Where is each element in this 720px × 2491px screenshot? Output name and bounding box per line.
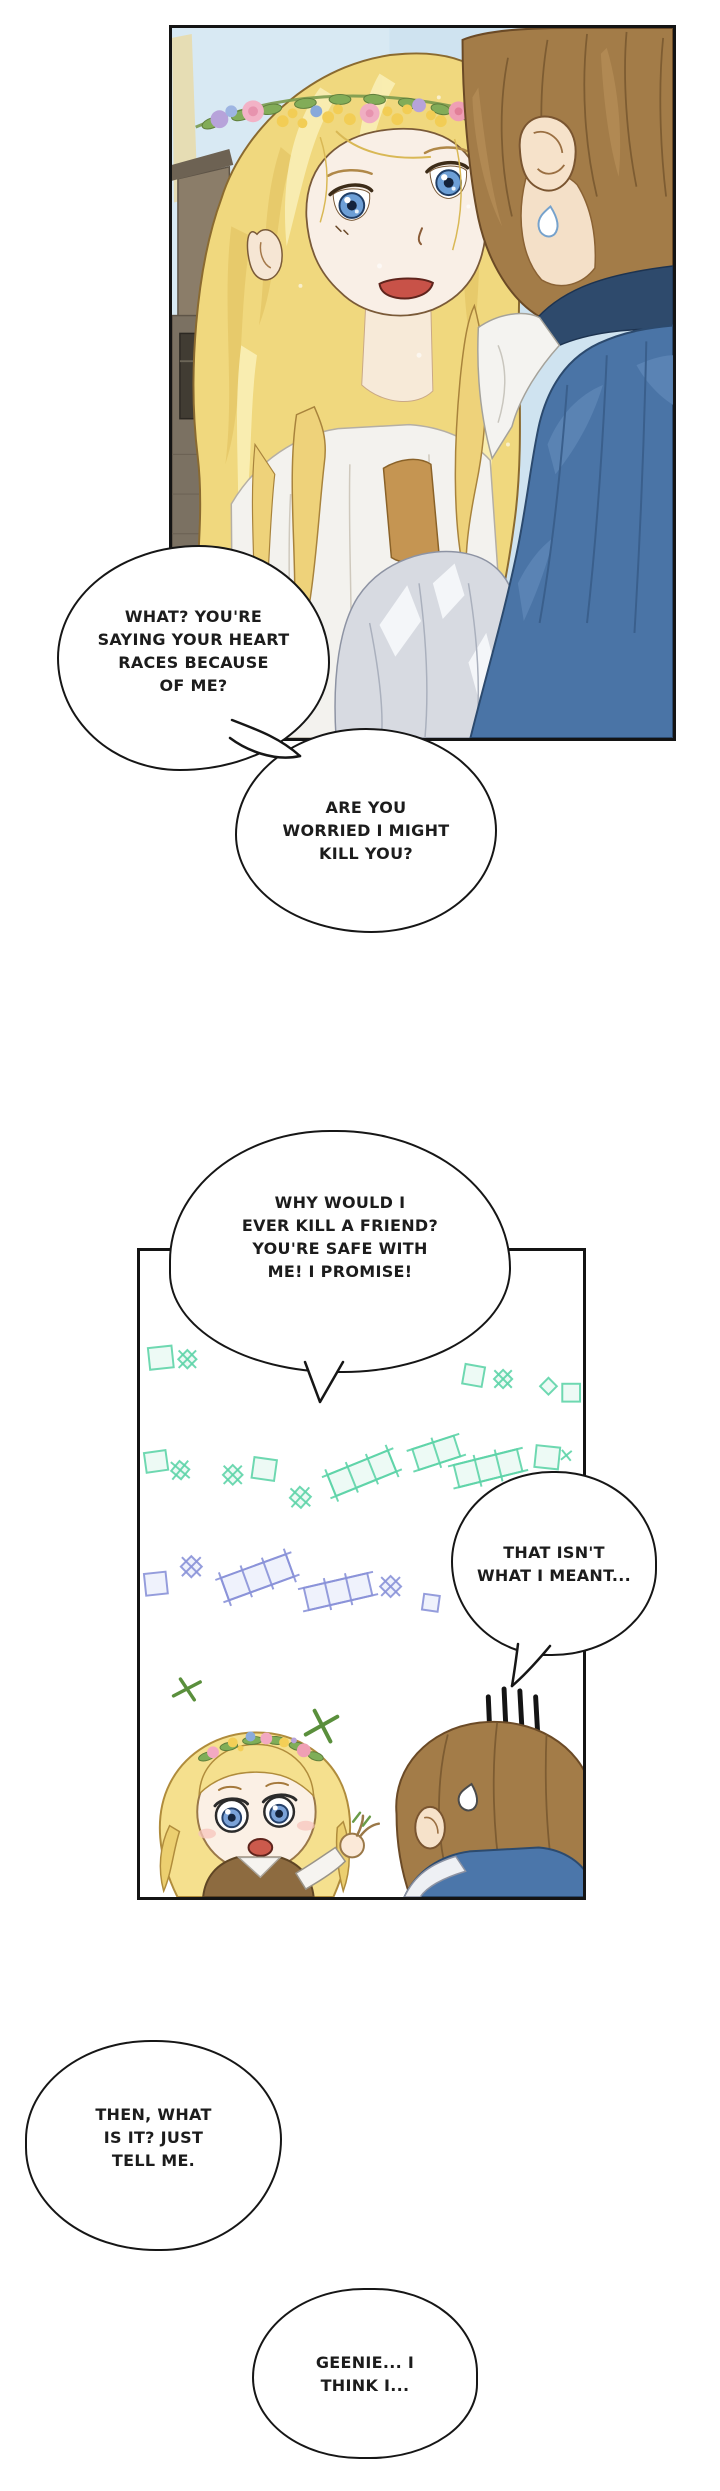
bubble-line: KILL YOU? [319,842,413,865]
bubble-line: OF ME? [159,674,227,697]
man-ear [520,116,576,190]
bubble-line: ME! I PROMISE! [268,1260,413,1283]
chibi-boy-ear [415,1807,445,1849]
speech-bubble-5: THEN, WHAT IS IT? JUST TELL ME. [25,2040,282,2251]
speech-bubble-4: THAT ISN'T WHAT I MEANT... [451,1471,657,1656]
bubble-line: YOU'RE SAFE WITH [252,1237,427,1260]
webtoon-page: WHAT? YOU'RE SAYING YOUR HEART RACES BEC… [0,0,720,2491]
bubble-line: EVER KILL A FRIEND? [242,1214,438,1237]
woman-neck [362,306,433,402]
bubble-line: IS IT? JUST [104,2126,203,2149]
bubble-line: WORRIED I MIGHT [283,819,450,842]
chibi-boy [396,1722,583,1897]
speech-bubble-3: WHY WOULD I EVER KILL A FRIEND? YOU'RE S… [169,1130,511,1373]
bubble-line: RACES BECAUSE [118,651,269,674]
vest-strap [383,459,438,562]
bubble-line: WHY WOULD I [275,1191,406,1214]
speech-bubble-6: GEENIE... I THINK I... [252,2288,478,2459]
bubble-3-tail [303,1360,347,1406]
bubble-line: TELL ME. [112,2149,195,2172]
bubble-line: WHAT? YOU'RE [125,605,262,628]
bubble-line: ARE YOU [326,796,407,819]
bubble-line: THINK I... [321,2374,410,2397]
bubble-4-tail [510,1642,556,1688]
bubble-1-tail [228,714,306,772]
bubble-line: THAT ISN'T [503,1541,605,1564]
chibi-girl-mouth [249,1839,273,1856]
bubble-line: SAYING YOUR HEART [98,628,290,651]
bubble-line: GEENIE... I [316,2351,414,2374]
bubble-line: THEN, WHAT [95,2103,211,2126]
bubble-line: WHAT I MEANT... [477,1564,631,1587]
